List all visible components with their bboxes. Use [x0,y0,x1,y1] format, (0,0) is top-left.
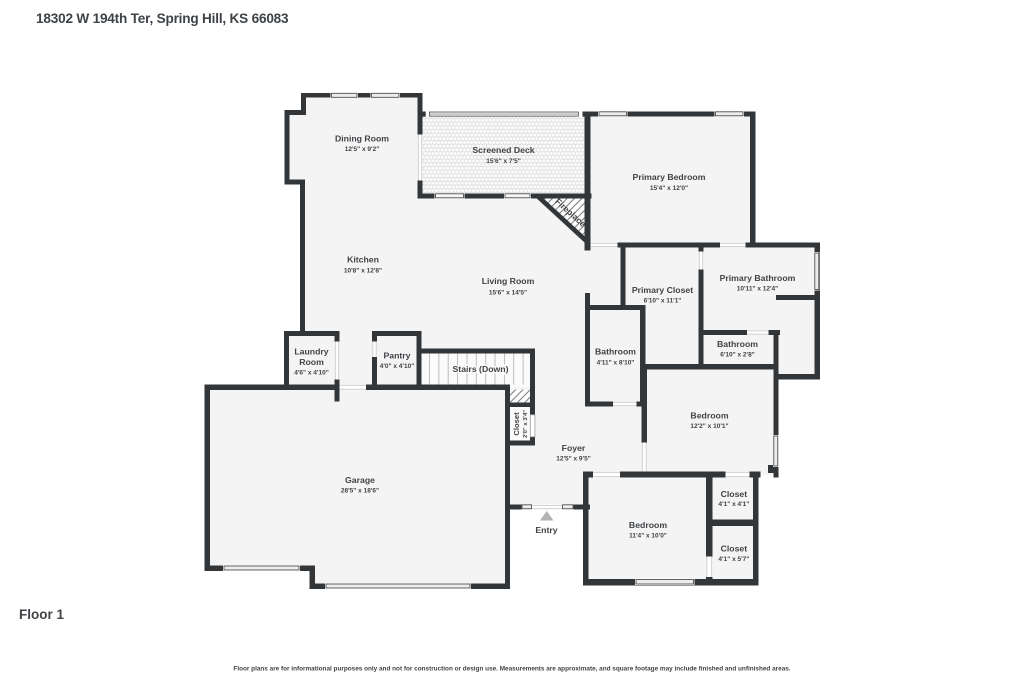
svg-text:Foyer: Foyer [562,443,586,453]
svg-text:Stairs (Down): Stairs (Down) [453,364,509,374]
svg-text:15'6" x 7'5": 15'6" x 7'5" [486,158,521,165]
svg-text:4'6" x 4'10": 4'6" x 4'10" [294,370,329,377]
svg-text:12'5" x 9'5": 12'5" x 9'5" [556,456,591,463]
svg-text:Bedroom: Bedroom [690,411,728,421]
svg-text:Screened Deck: Screened Deck [472,145,534,155]
svg-text:4'1" x 4'1": 4'1" x 4'1" [718,501,749,508]
svg-text:Living Room: Living Room [482,276,535,286]
svg-text:10'8" x 12'8": 10'8" x 12'8" [344,268,382,275]
svg-text:4'1" x 5'7": 4'1" x 5'7" [718,556,749,563]
svg-text:Bathroom: Bathroom [595,347,636,357]
svg-text:Dining Room: Dining Room [335,134,389,144]
svg-text:4'11" x 8'10": 4'11" x 8'10" [597,360,635,367]
svg-text:12'5" x 9'2": 12'5" x 9'2" [345,146,380,153]
svg-text:Room: Room [299,357,324,367]
svg-text:Primary Bathroom: Primary Bathroom [720,273,796,283]
svg-text:Garage: Garage [345,475,375,485]
svg-text:Entry: Entry [535,525,557,535]
svg-text:Kitchen: Kitchen [347,255,379,265]
svg-text:Floor 1: Floor 1 [19,607,64,622]
svg-text:Primary Bedroom: Primary Bedroom [633,172,706,182]
svg-text:15'6" x 14'5": 15'6" x 14'5" [489,290,527,297]
svg-text:18302 W 194th Ter, Spring Hill: 18302 W 194th Ter, Spring Hill, KS 66083 [36,11,289,26]
svg-text:12'2" x 10'1": 12'2" x 10'1" [690,423,728,430]
svg-text:2'0" x 3'4": 2'0" x 3'4" [523,410,529,438]
svg-text:11'4" x 10'0": 11'4" x 10'0" [629,533,667,540]
svg-text:Laundry: Laundry [294,347,328,357]
svg-text:4'0" x 4'10": 4'0" x 4'10" [380,363,415,370]
svg-text:Primary Closet: Primary Closet [632,285,693,295]
svg-text:6'10" x 2'8": 6'10" x 2'8" [720,352,755,359]
svg-text:28'5" x 18'6": 28'5" x 18'6" [341,488,379,495]
svg-text:Pantry: Pantry [383,351,410,361]
svg-text:Closet: Closet [721,544,748,554]
svg-text:15'4" x 12'0": 15'4" x 12'0" [650,185,688,192]
svg-text:10'11" x 12'4": 10'11" x 12'4" [737,286,778,293]
svg-text:Floor plans are for informatio: Floor plans are for informational purpos… [233,666,790,673]
svg-text:Closet: Closet [721,489,748,499]
svg-text:Bathroom: Bathroom [717,339,758,349]
svg-text:6'10" x 11'1": 6'10" x 11'1" [644,298,682,305]
svg-text:Closet: Closet [512,412,521,436]
svg-text:Bedroom: Bedroom [629,520,667,530]
